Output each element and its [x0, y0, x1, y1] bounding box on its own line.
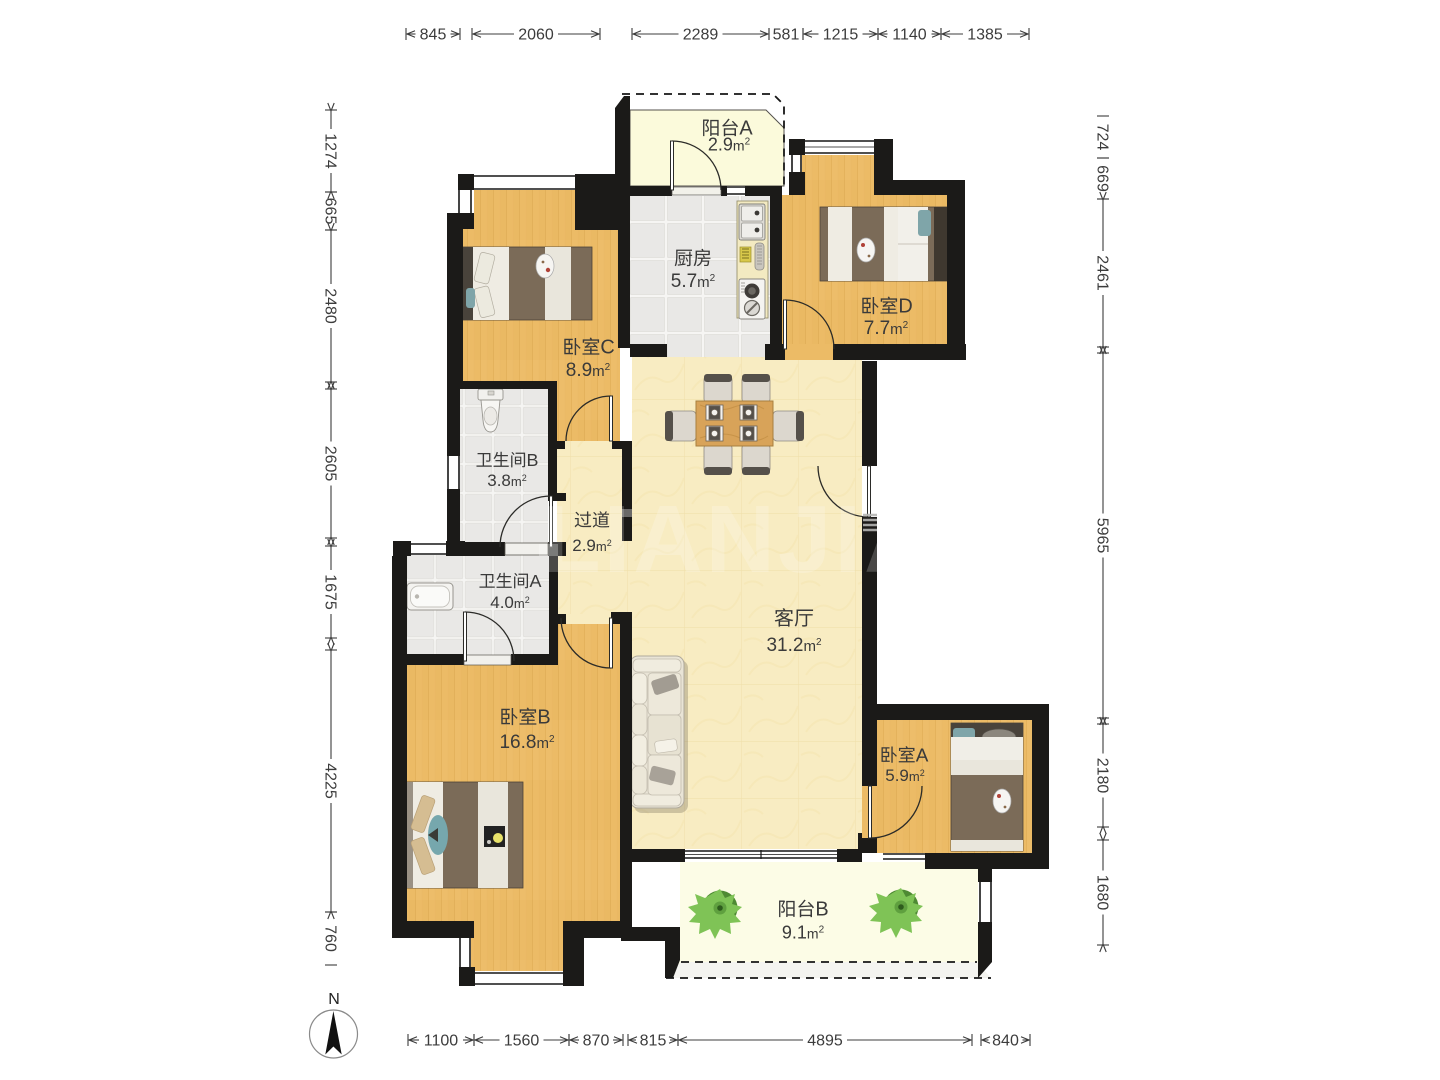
- svg-text:2180: 2180: [1094, 758, 1111, 794]
- svg-text:2289: 2289: [683, 27, 719, 44]
- svg-text:9.1m2: 9.1m2: [782, 923, 825, 943]
- svg-text:1100: 1100: [424, 1033, 459, 1050]
- svg-text:8.9m2: 8.9m2: [566, 360, 611, 381]
- svg-text:5.7m2: 5.7m2: [671, 271, 716, 292]
- svg-text:4895: 4895: [807, 1033, 843, 1050]
- svg-text:1215: 1215: [823, 27, 859, 44]
- svg-text:1274: 1274: [322, 133, 339, 169]
- svg-text:665: 665: [322, 198, 339, 225]
- svg-text:669: 669: [1094, 165, 1111, 192]
- svg-text:2461: 2461: [1094, 255, 1111, 291]
- svg-text:760: 760: [322, 925, 339, 952]
- svg-text:1675: 1675: [322, 574, 339, 610]
- svg-text:5965: 5965: [1094, 518, 1111, 554]
- svg-text:B: B: [815, 899, 828, 921]
- svg-text:581: 581: [773, 27, 800, 44]
- svg-text:7.7m2: 7.7m2: [864, 318, 909, 339]
- svg-text:870: 870: [583, 1033, 610, 1050]
- svg-text:815: 815: [640, 1033, 667, 1050]
- svg-text:16.8m2: 16.8m2: [499, 732, 554, 753]
- svg-text:840: 840: [992, 1033, 1019, 1050]
- svg-text:2480: 2480: [322, 288, 339, 324]
- svg-text:C: C: [600, 337, 614, 359]
- svg-text:5.9m2: 5.9m2: [885, 766, 925, 785]
- svg-text:4.0m2: 4.0m2: [490, 593, 530, 612]
- svg-text:B: B: [527, 450, 539, 470]
- svg-text:31.2m2: 31.2m2: [766, 635, 821, 656]
- svg-text:724: 724: [1094, 124, 1111, 151]
- svg-text:2060: 2060: [518, 27, 554, 44]
- svg-text:D: D: [898, 296, 912, 318]
- svg-text:N: N: [328, 991, 340, 1008]
- svg-text:1560: 1560: [504, 1033, 540, 1050]
- svg-text:3.8m2: 3.8m2: [487, 471, 527, 490]
- svg-text:845: 845: [420, 27, 447, 44]
- svg-text:1385: 1385: [967, 27, 1003, 44]
- svg-text:2.9m2: 2.9m2: [708, 135, 751, 155]
- svg-text:A: A: [916, 745, 929, 766]
- svg-text:4225: 4225: [322, 763, 339, 799]
- svg-text:1680: 1680: [1094, 875, 1111, 911]
- svg-text:B: B: [537, 707, 550, 729]
- svg-text:1140: 1140: [892, 27, 927, 44]
- svg-text:2605: 2605: [322, 446, 339, 482]
- svg-text:A: A: [530, 571, 542, 591]
- svg-text:2.9m2: 2.9m2: [572, 536, 612, 555]
